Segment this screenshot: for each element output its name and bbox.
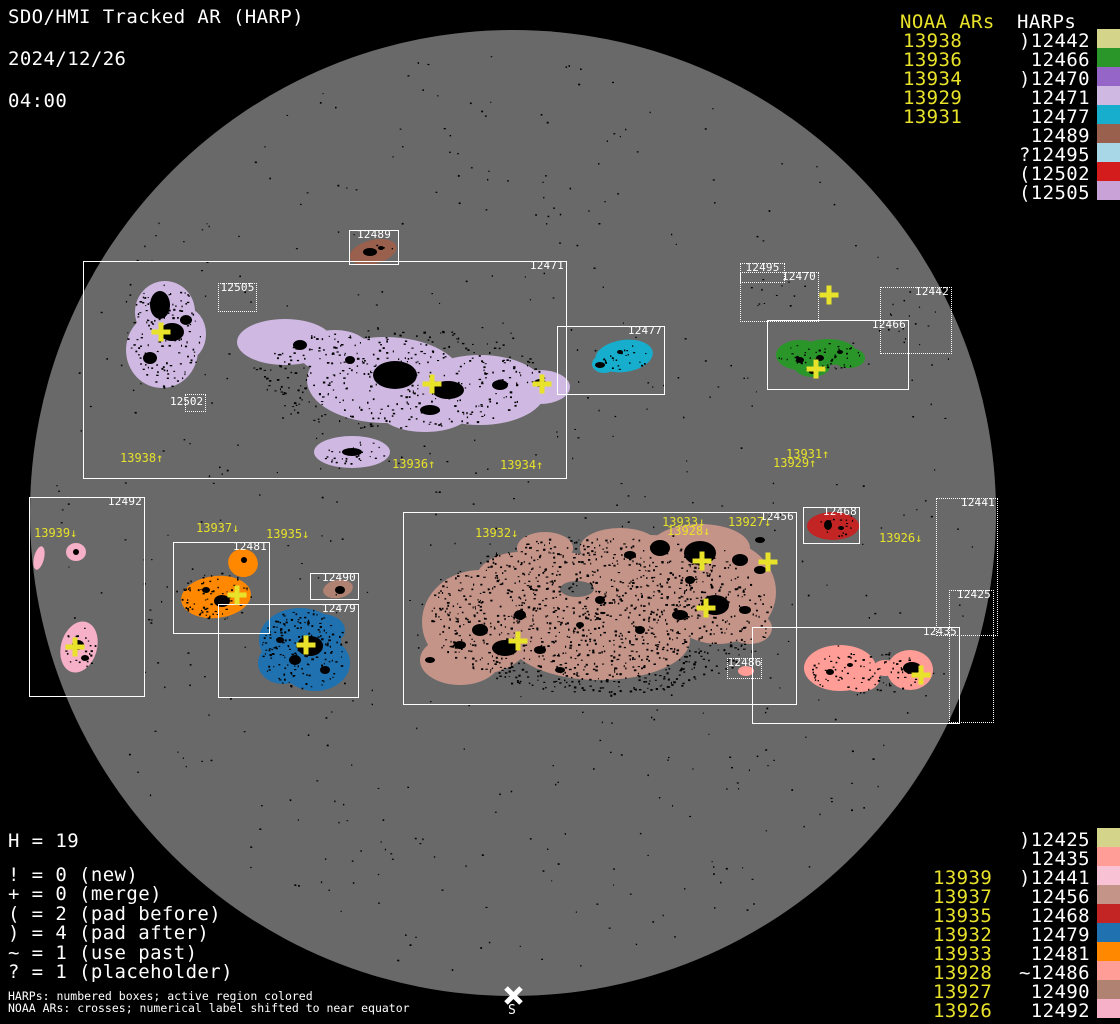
- harp-box-12470: 12470: [740, 272, 819, 322]
- south-pole-label: S: [508, 1003, 516, 1018]
- legend-harp-item: (12505: [960, 182, 1090, 204]
- harp-color-swatch-12486: [1097, 961, 1120, 980]
- harp-plot: 12471 12477 12466 12489 12468 12456 1249…: [0, 0, 1120, 1024]
- harp-box-12471: 12471: [83, 261, 567, 479]
- harp-box-12490: 12490: [310, 573, 359, 600]
- harp-box-12486: 12486: [727, 658, 762, 679]
- harp-color-swatch-12490: [1097, 980, 1120, 999]
- noaa-ar-label-13934: 13934↑: [500, 459, 543, 471]
- harp-color-swatch-12492: [1097, 999, 1120, 1018]
- harp-box-12468: 12468: [803, 507, 860, 544]
- harp-color-swatch-12470: [1097, 67, 1120, 86]
- harp-box-label: 12425: [957, 589, 991, 601]
- legend-noaa-item: 13926: [933, 1000, 995, 1022]
- harp-box-label: 12470: [782, 271, 816, 283]
- harp-box-label: 12492: [108, 496, 142, 508]
- noaa-ar-label-13927: 13927↓: [728, 516, 771, 528]
- harp-box-label: 12486: [727, 657, 761, 669]
- harp-color-swatch-12435: [1097, 847, 1120, 866]
- harp-color-swatch-12495: [1097, 143, 1120, 162]
- harp-color-swatch-12442: [1097, 29, 1120, 48]
- harp-box-label: 12489: [357, 229, 391, 241]
- noaa-ar-label-13939: 13939↓: [34, 527, 77, 539]
- status-symbol-legend: ! = 0 (new) + = 0 (merge) ( = 2 (pad bef…: [8, 866, 233, 982]
- harp-box-label: 12442: [915, 286, 949, 298]
- noaa-ar-label-13932: 13932↓: [475, 527, 518, 539]
- harp-box-12435: 12435: [752, 627, 960, 724]
- harp-color-swatch-12456: [1097, 885, 1120, 904]
- plot-title: SDO/HMI Tracked AR (HARP) 2024/12/26 04:…: [8, 7, 304, 112]
- harp-box-label: 12471: [530, 260, 564, 272]
- harp-count: H = 19: [8, 830, 79, 852]
- title-time: 04:00: [8, 90, 67, 112]
- harp-box-label: 12490: [322, 572, 356, 584]
- harp-color-swatch-12468: [1097, 904, 1120, 923]
- harp-box-label: 12441: [961, 497, 995, 509]
- harp-box-label: 12468: [823, 506, 857, 518]
- harp-box-label: 12505: [220, 282, 254, 294]
- harp-box-12477: 12477: [557, 326, 665, 395]
- harp-color-swatch-12441: [1097, 866, 1120, 885]
- title-text: SDO/HMI Tracked AR (HARP): [8, 6, 304, 28]
- noaa-ar-label-13935: 13935↓: [266, 528, 309, 540]
- harp-color-swatch-12477: [1097, 105, 1120, 124]
- harp-box-12505: 12505: [218, 283, 257, 312]
- noaa-ar-label-13938: 13938↑: [120, 452, 163, 464]
- noaa-ar-label-13926: 13926↓: [879, 532, 922, 544]
- harp-box-12442: 12442: [880, 287, 952, 354]
- harp-box-12489: 12489: [349, 230, 399, 265]
- harp-box-label: 12479: [322, 603, 356, 615]
- title-date: 2024/12/26: [8, 48, 126, 70]
- legend-noaa-item: 13931: [903, 106, 965, 128]
- harp-color-swatch-12481: [1097, 942, 1120, 961]
- harp-box-label: 12477: [628, 325, 662, 337]
- harp-box-12425: 12425: [949, 590, 994, 723]
- south-pole-marker-icon: [506, 988, 521, 1003]
- footnote-noaa: NOAA ARs: crosses; numerical label shift…: [8, 1002, 410, 1014]
- harp-color-swatch-12471: [1097, 86, 1120, 105]
- noaa-cross: [820, 286, 839, 305]
- harp-color-swatch-12502: [1097, 162, 1120, 181]
- harp-color-swatch-12489: [1097, 124, 1120, 143]
- harp-color-swatch-12505: [1097, 181, 1120, 200]
- harp-box-12479: 12479: [218, 604, 359, 698]
- harp-color-swatch-12466: [1097, 48, 1120, 67]
- noaa-ar-label-13929: 13929↑: [773, 457, 816, 469]
- harp-box-label-12502: 12502: [170, 396, 203, 408]
- noaa-ar-label-13936: 13936↑: [392, 458, 435, 470]
- harp-box-label: 12481: [233, 541, 267, 553]
- harp-color-swatch-12425: [1097, 828, 1120, 847]
- harp-color-swatch-12479: [1097, 923, 1120, 942]
- noaa-ar-label-13937: 13937↓: [196, 522, 239, 534]
- noaa-ar-label-13928: 13928↓: [667, 525, 710, 537]
